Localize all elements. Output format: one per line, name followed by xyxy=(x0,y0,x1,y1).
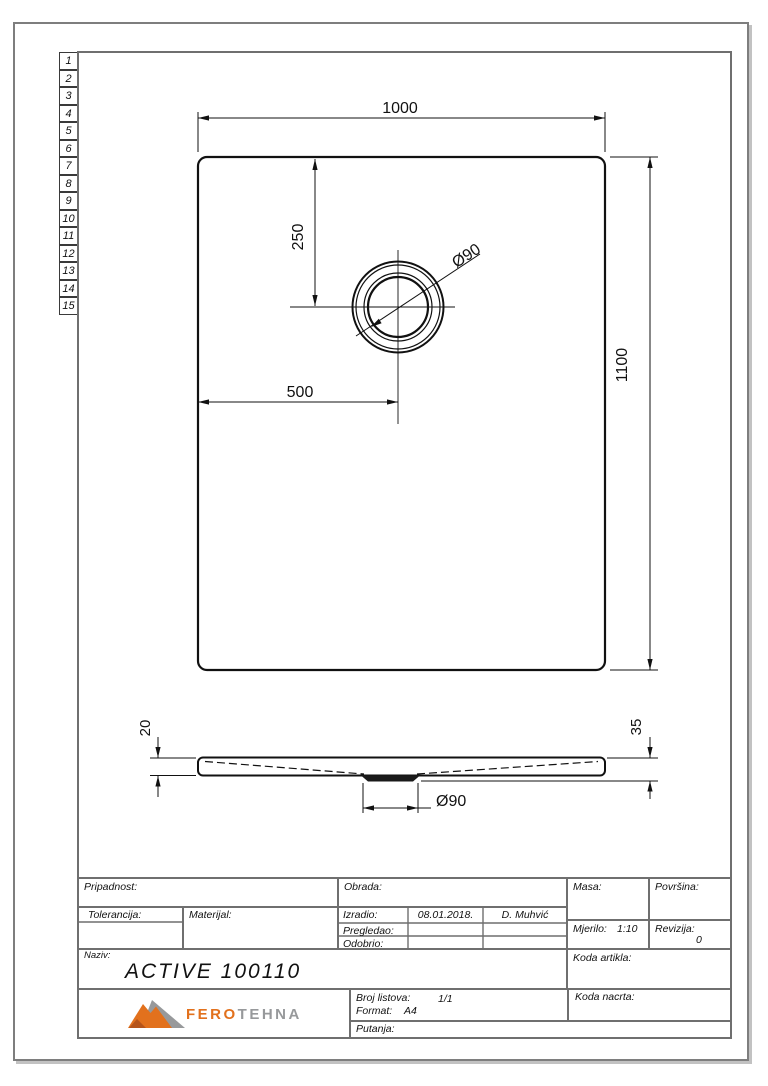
ferotehna-logo-icon xyxy=(128,1000,185,1028)
pregledao-label: Pregledao: xyxy=(343,925,394,937)
dim-arrow xyxy=(407,805,418,810)
mjerilo-label: Mjerilo: xyxy=(573,923,607,935)
dim-total-depth-label: 35 xyxy=(628,719,645,736)
tolerancija-label: Tolerancija: xyxy=(88,909,141,921)
ferotehna-logo-text: FEROTEHNA xyxy=(186,1006,302,1023)
izradio-date: 08.01.2018. xyxy=(408,909,483,921)
masa-label: Masa: xyxy=(573,881,602,893)
revizija-value: 0 xyxy=(696,934,702,946)
materijal-label: Materijal: xyxy=(189,909,232,921)
odobrio-label: Odobrio: xyxy=(343,938,383,950)
broj-listova-label: Broj listova: xyxy=(356,992,410,1004)
dim-offset-y-label: 250 xyxy=(290,224,307,251)
naziv-value: ACTIVE 100110 xyxy=(125,960,301,984)
drawing-canvas: Ø90 1000 1100 250 500 xyxy=(0,0,768,1086)
revizija-label: Revizija: xyxy=(655,923,695,935)
top-view: Ø90 1000 1100 250 500 xyxy=(198,100,658,670)
obrada-label: Obrada: xyxy=(344,881,382,893)
drain-flange xyxy=(361,776,420,782)
mjerilo-value: 1:10 xyxy=(617,923,637,935)
section-view: 20 35 Ø90 xyxy=(137,719,658,813)
dim-arrow xyxy=(647,659,652,670)
format-label: Format: xyxy=(356,1005,392,1017)
pripadnost-label: Pripadnost: xyxy=(84,881,137,893)
koda-nacrta-label: Koda nacrta: xyxy=(575,991,635,1003)
format-value: A4 xyxy=(404,1005,417,1017)
logo-fero-text: FERO xyxy=(186,1006,238,1023)
drawing-sheet: 1 2 3 4 5 6 7 8 9 10 11 12 13 14 15 Ø90 xyxy=(0,0,768,1086)
dim-arrow xyxy=(647,157,652,168)
putanja-label: Putanja: xyxy=(356,1023,395,1035)
povrsina-label: Površina: xyxy=(655,881,699,893)
dim-arrow xyxy=(647,747,652,758)
dim-arrow xyxy=(155,747,160,758)
dim-arrow xyxy=(198,115,209,120)
izradio-name: D. Muhvić xyxy=(483,909,567,921)
dim-section-drain-label: Ø90 xyxy=(436,793,466,810)
koda-artikla-label: Koda artikla: xyxy=(573,952,631,964)
dim-width-label: 1000 xyxy=(382,100,418,117)
section-outline xyxy=(198,758,605,776)
dim-arrow xyxy=(647,781,652,792)
dim-height-label: 1100 xyxy=(614,348,631,383)
tray-outline xyxy=(198,157,605,670)
dim-edge-thickness-label: 20 xyxy=(137,720,154,737)
naziv-label: Naziv: xyxy=(84,950,110,962)
broj-listova-value: 1/1 xyxy=(438,993,453,1005)
izradio-label: Izradio: xyxy=(343,909,377,921)
logo-tehna-text: TEHNA xyxy=(238,1006,302,1023)
dim-arrow xyxy=(363,805,374,810)
dim-arrow xyxy=(594,115,605,120)
dim-arrow xyxy=(155,776,160,787)
dim-offset-x-label: 500 xyxy=(287,384,314,401)
